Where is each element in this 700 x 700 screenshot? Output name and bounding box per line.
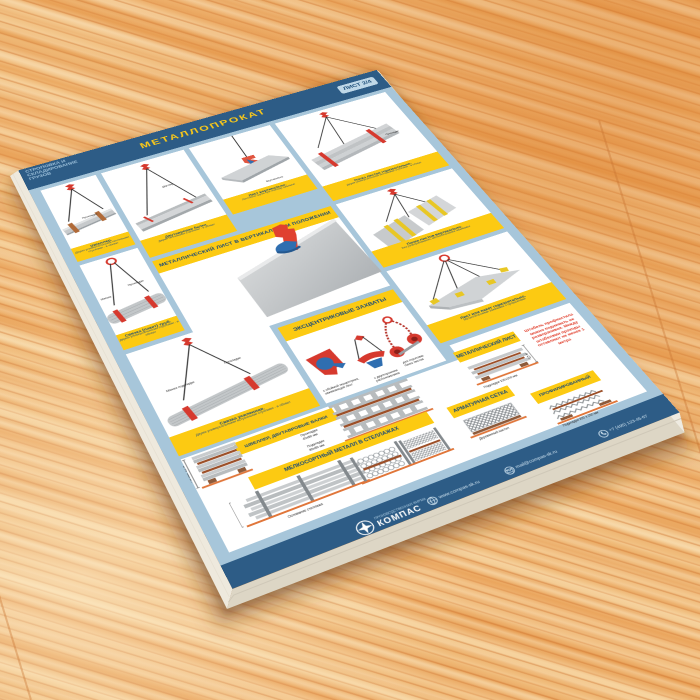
svg-text:Мягкие подкладки: Мягкие подкладки xyxy=(166,380,196,393)
svg-text:Прокладки: Прокладки xyxy=(224,356,243,365)
svg-text:Двутавр: Двутавр xyxy=(162,183,175,188)
svg-text:Мягкие: Мягкие xyxy=(100,295,113,301)
